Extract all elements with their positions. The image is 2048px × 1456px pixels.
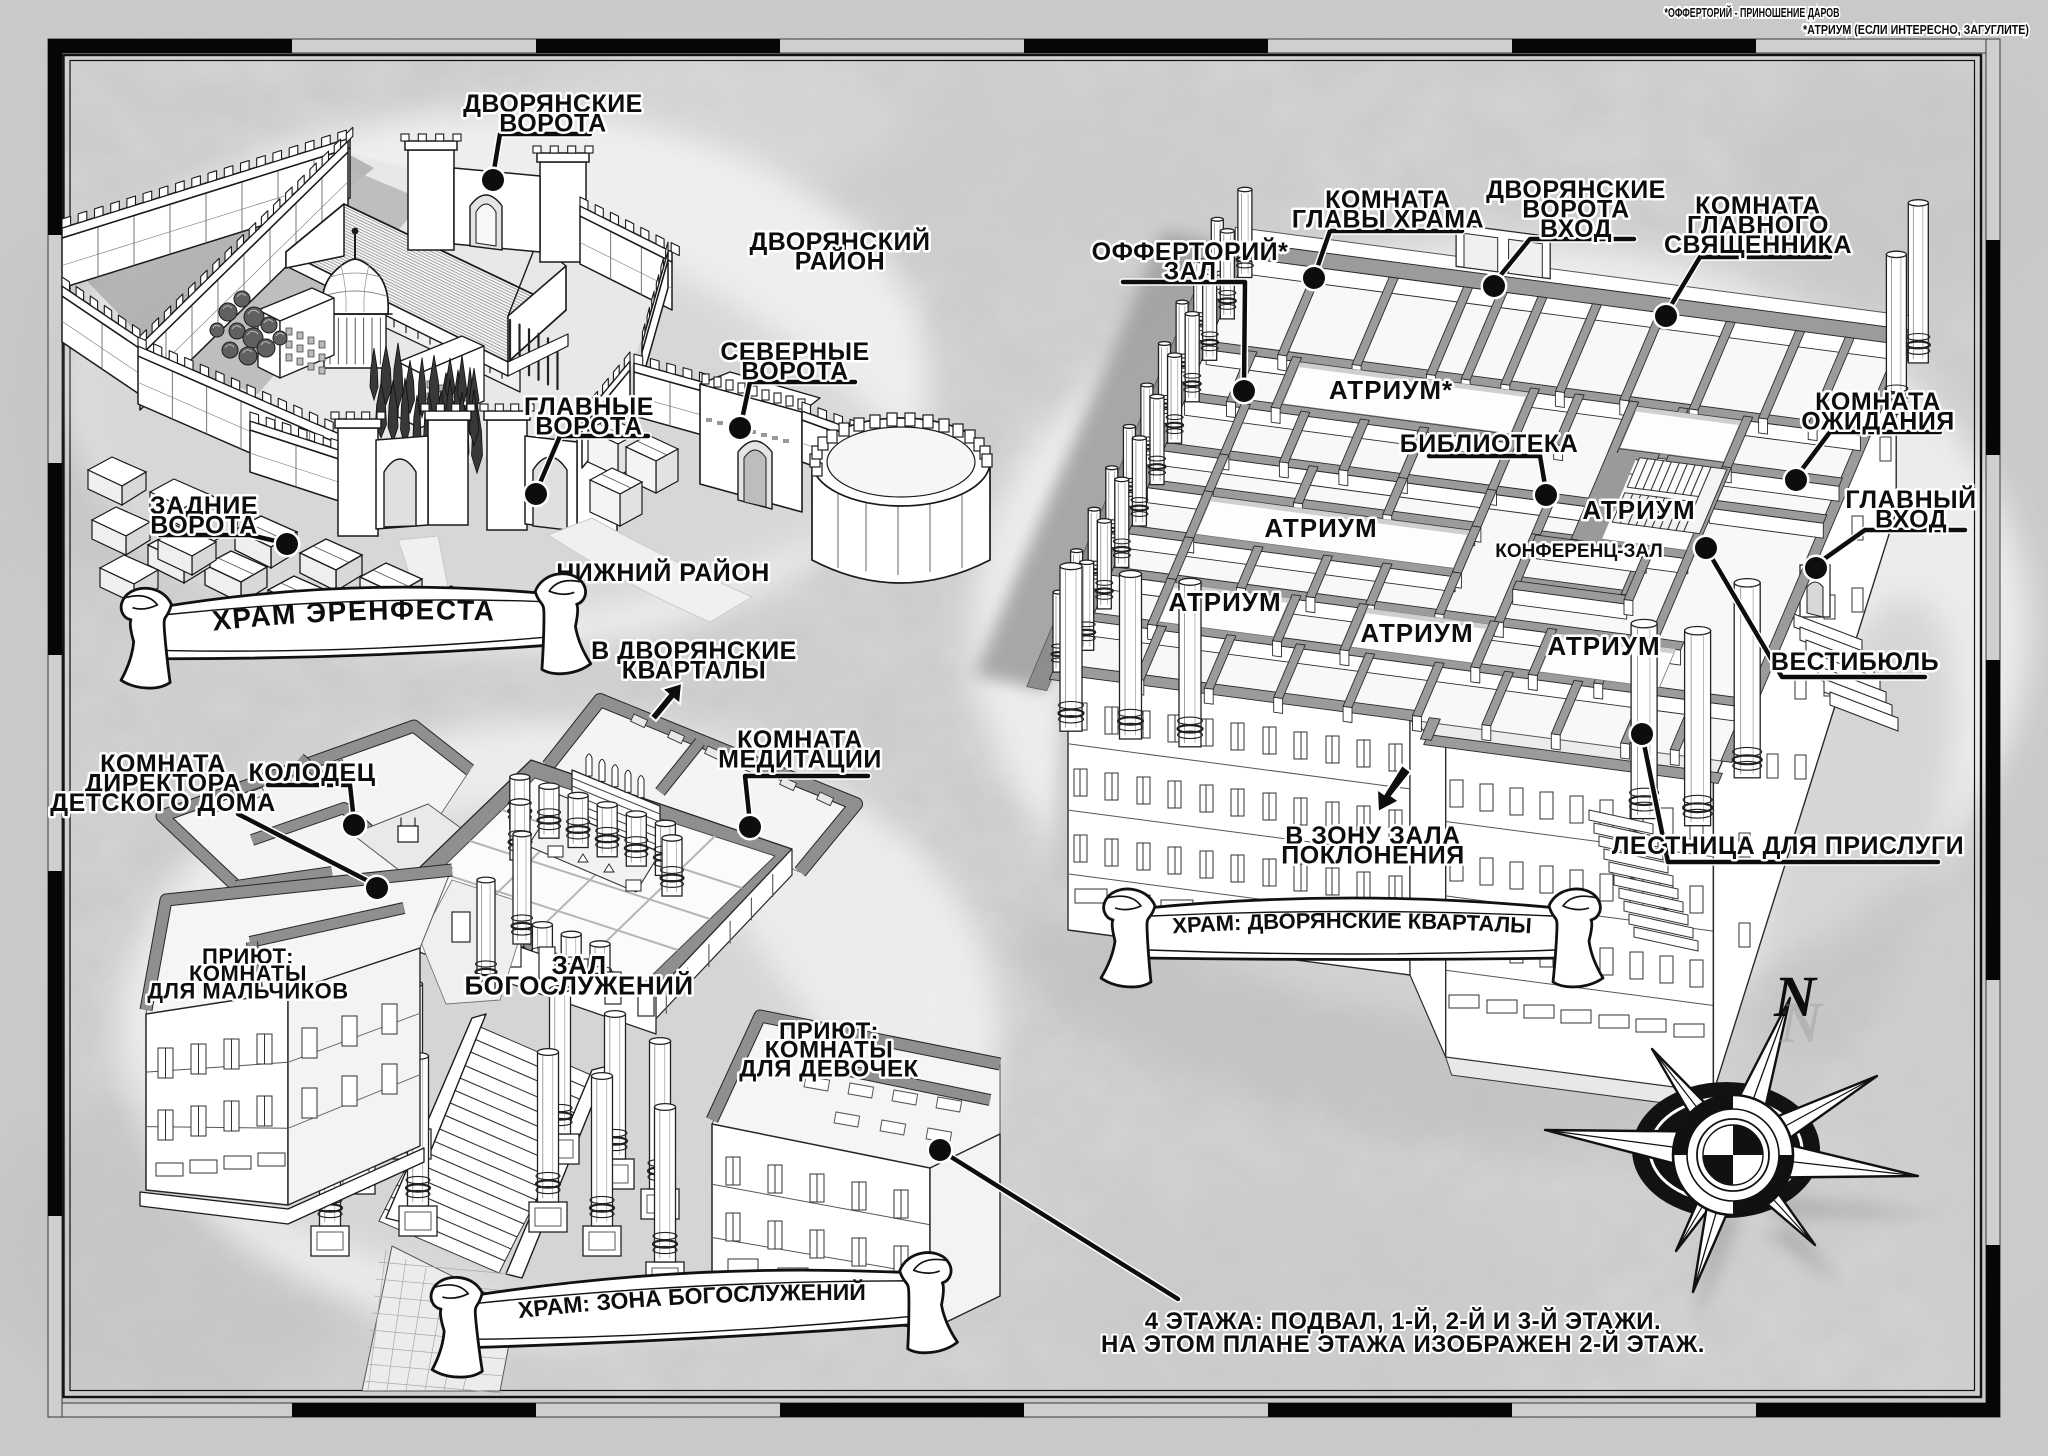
svg-text:ДЛЯ ДЕВОЧЕК: ДЛЯ ДЕВОЧЕК (739, 1055, 918, 1082)
svg-text:КОЛОДЕЦ: КОЛОДЕЦ (249, 759, 376, 787)
svg-text:НА ЭТОМ ПЛАНЕ ЭТАЖА ИЗОБРАЖЕН: НА ЭТОМ ПЛАНЕ ЭТАЖА ИЗОБРАЖЕН 2-Й ЭТАЖ. (1101, 1330, 1705, 1358)
svg-text:ВЕСТИБЮЛЬ: ВЕСТИБЮЛЬ (1771, 648, 1939, 676)
svg-text:ГЛАВЫ ХРАМА: ГЛАВЫ ХРАМА (1292, 206, 1484, 234)
svg-text:ЗАЛ: ЗАЛ (1163, 258, 1216, 286)
svg-text:*ОФФЕРТОРИЙ - ПРИНОШЕНИЕ ДАРОВ: *ОФФЕРТОРИЙ - ПРИНОШЕНИЕ ДАРОВ (1665, 5, 1840, 20)
svg-text:ВОРОТА: ВОРОТА (150, 512, 257, 540)
svg-text:АТРИУМ: АТРИУМ (1168, 587, 1281, 617)
svg-text:N: N (1773, 964, 1818, 1029)
svg-text:ОЖИДАНИЯ: ОЖИДАНИЯ (1801, 408, 1955, 436)
svg-text:АТРИУМ: АТРИУМ (1547, 631, 1660, 661)
svg-text:МЕДИТАЦИИ: МЕДИТАЦИИ (718, 746, 882, 774)
svg-text:НИЖНИЙ РАЙОН: НИЖНИЙ РАЙОН (556, 557, 770, 587)
svg-text:АТРИУМ: АТРИУМ (1582, 495, 1695, 525)
svg-text:ЛЕСТНИЦА ДЛЯ ПРИСЛУГИ: ЛЕСТНИЦА ДЛЯ ПРИСЛУГИ (1612, 832, 1964, 860)
svg-text:ВХОД: ВХОД (1875, 506, 1947, 534)
svg-text:АТРИУМ*: АТРИУМ* (1329, 375, 1453, 405)
svg-text:РАЙОН: РАЙОН (795, 246, 886, 276)
svg-text:БИБЛИОТЕКА: БИБЛИОТЕКА (1400, 430, 1579, 458)
svg-text:БОГОСЛУЖЕНИЙ: БОГОСЛУЖЕНИЙ (464, 970, 693, 1000)
svg-text:АТРИУМ: АТРИУМ (1360, 618, 1473, 648)
svg-text:ПОКЛОНЕНИЯ: ПОКЛОНЕНИЯ (1281, 842, 1464, 870)
svg-text:ДЕТСКОГО ДОМА: ДЕТСКОГО ДОМА (50, 789, 275, 817)
svg-text:СВЯЩЕННИКА: СВЯЩЕННИКА (1664, 231, 1852, 259)
svg-text:КОНФЕРЕНЦ-ЗАЛ: КОНФЕРЕНЦ-ЗАЛ (1495, 541, 1662, 562)
svg-text:ВХОД: ВХОД (1540, 215, 1612, 243)
svg-text:*АТРИУМ (ЕСЛИ ИНТЕРЕСНО, ЗАГУГ: *АТРИУМ (ЕСЛИ ИНТЕРЕСНО, ЗАГУГЛИТЕ) (1803, 22, 2029, 37)
svg-text:КВАРТАЛЫ: КВАРТАЛЫ (622, 657, 767, 685)
svg-text:ДЛЯ МАЛЬЧИКОВ: ДЛЯ МАЛЬЧИКОВ (147, 978, 348, 1003)
svg-text:ВОРОТА: ВОРОТА (535, 413, 642, 441)
svg-text:АТРИУМ: АТРИУМ (1264, 513, 1377, 543)
svg-text:ВОРОТА: ВОРОТА (741, 358, 848, 386)
svg-text:ВОРОТА: ВОРОТА (499, 110, 606, 138)
